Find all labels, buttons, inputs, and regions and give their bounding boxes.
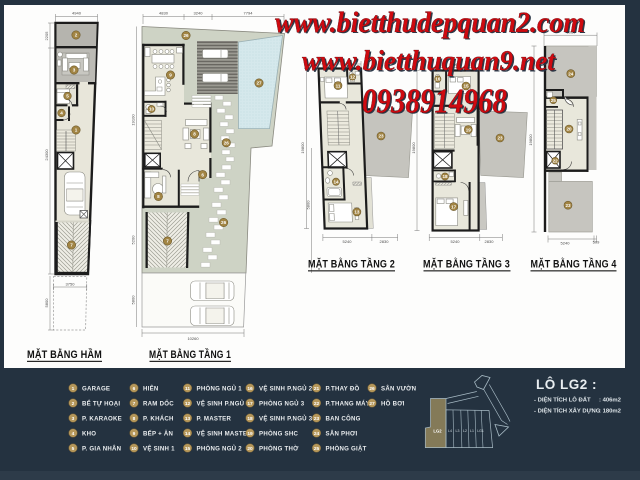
svg-text:HIÊN: HIÊN: [143, 384, 159, 392]
svg-text:10: 10: [149, 107, 155, 112]
svg-text:23: 23: [565, 203, 571, 208]
svg-text:P. KARAOKE: P. KARAOKE: [82, 415, 122, 422]
svg-text:BỂ TỰ HOẠI: BỂ TỰ HOẠI: [82, 400, 120, 407]
svg-text:LG1: LG1: [477, 429, 484, 433]
svg-text:SÂN VƯỜN: SÂN VƯỜN: [381, 384, 416, 392]
svg-text:19800: 19800: [528, 134, 533, 146]
svg-text:MẶT BẰNG TẦNG 4: MẶT BẰNG TẦNG 4: [531, 258, 618, 271]
svg-text:SÂN PHƠI: SÂN PHƠI: [326, 430, 358, 437]
svg-text:5240: 5240: [343, 239, 353, 244]
svg-text:19100: 19100: [131, 114, 136, 126]
svg-text:5: 5: [72, 446, 75, 452]
svg-text:MẶT BẰNG TẦNG 3: MẶT BẰNG TẦNG 3: [423, 258, 510, 271]
svg-text:RAM DỐC: RAM DỐC: [143, 400, 174, 407]
svg-text:VỆ SINH P.NGỦ 1: VỆ SINH P.NGỦ 1: [197, 399, 251, 407]
svg-text:7: 7: [70, 243, 73, 248]
svg-text:22: 22: [314, 401, 320, 407]
svg-text:1: 1: [75, 128, 78, 133]
svg-text:- DIỆN TÍCH LÔ ĐẤT: - DIỆN TÍCH LÔ ĐẤT: [534, 396, 591, 404]
svg-text:BẾP + ĂN: BẾP + ĂN: [143, 430, 173, 437]
svg-text:23: 23: [314, 416, 320, 422]
svg-text:PHÒNG NGỦ 2: PHÒNG NGỦ 2: [197, 444, 243, 452]
svg-text:LÔ LG2 :: LÔ LG2 :: [536, 377, 597, 392]
svg-text:5240: 5240: [451, 239, 461, 244]
svg-text:L3: L3: [456, 429, 460, 433]
svg-text:2830: 2830: [485, 239, 495, 244]
svg-text:8: 8: [193, 132, 196, 137]
svg-text:PHÒNG GIẶT: PHÒNG GIẶT: [326, 444, 367, 452]
svg-text:19800: 19800: [300, 142, 305, 154]
svg-text:10: 10: [131, 446, 137, 452]
svg-text:15: 15: [185, 446, 191, 452]
svg-text:11: 11: [185, 386, 190, 392]
svg-text:24: 24: [314, 431, 320, 437]
svg-text:509: 509: [593, 240, 600, 245]
svg-text:3: 3: [72, 416, 75, 422]
svg-text:24: 24: [568, 71, 574, 76]
svg-text:3750: 3750: [66, 282, 76, 287]
svg-text:P. MASTER: P. MASTER: [197, 415, 232, 422]
svg-text:23: 23: [378, 134, 384, 139]
svg-text:18: 18: [442, 174, 448, 179]
svg-text:13: 13: [354, 210, 360, 215]
svg-text:HỒ BƠI: HỒ BƠI: [381, 400, 405, 407]
svg-text:10260: 10260: [187, 336, 199, 341]
svg-text:PHÒNG NGỦ 1: PHÒNG NGỦ 1: [197, 384, 243, 392]
svg-text:26: 26: [221, 220, 227, 225]
svg-text:20: 20: [247, 446, 253, 452]
svg-text:: 180m2: : 180m2: [599, 409, 622, 415]
svg-text:6: 6: [133, 386, 136, 392]
svg-text:22: 22: [553, 158, 559, 163]
svg-text:MẶT BẰNG HẦM: MẶT BẰNG HẦM: [27, 348, 102, 361]
svg-text:- DIỆN TÍCH XÂY DỰNG: - DIỆN TÍCH XÂY DỰNG: [534, 407, 601, 415]
svg-text:21: 21: [314, 386, 320, 392]
svg-text:9: 9: [169, 73, 172, 78]
svg-text:26: 26: [183, 33, 189, 38]
svg-text:27: 27: [369, 401, 375, 407]
svg-text:VỆ SINH 1: VỆ SINH 1: [143, 444, 175, 452]
svg-text:0938914968: 0938914968: [362, 81, 507, 120]
svg-text:VỆ SINH P.NGỦ 2: VỆ SINH P.NGỦ 2: [259, 384, 313, 392]
svg-text:7794: 7794: [244, 11, 254, 16]
svg-text:www.bietthuquan9.net: www.bietthuquan9.net: [302, 45, 556, 77]
svg-text:19800: 19800: [411, 142, 416, 154]
svg-text:2830: 2830: [380, 239, 390, 244]
svg-text:3: 3: [73, 68, 76, 73]
svg-text:24300: 24300: [44, 149, 49, 161]
svg-text:L4: L4: [448, 429, 452, 433]
svg-text:LG2: LG2: [433, 429, 442, 434]
svg-text:L2: L2: [463, 429, 467, 433]
svg-text:14: 14: [333, 179, 339, 184]
svg-text:GARAGE: GARAGE: [82, 385, 110, 392]
svg-text:9: 9: [133, 431, 136, 437]
svg-text:MẶT BẰNG TẦNG 2: MẶT BẰNG TẦNG 2: [308, 258, 395, 271]
svg-text:P. KHÁCH: P. KHÁCH: [143, 415, 174, 422]
svg-text:25: 25: [314, 446, 320, 452]
svg-text:11: 11: [336, 83, 341, 88]
svg-text:5240: 5240: [561, 240, 571, 245]
svg-text:25: 25: [551, 98, 557, 103]
svg-text:5800: 5800: [44, 298, 49, 308]
svg-text:P.THAY ĐỒ: P.THAY ĐỒ: [326, 385, 360, 392]
svg-text:4830: 4830: [159, 11, 169, 16]
svg-text:8: 8: [133, 416, 136, 422]
svg-text:13: 13: [185, 416, 191, 422]
svg-text:16: 16: [247, 386, 253, 392]
svg-text:20: 20: [566, 127, 572, 132]
svg-text:14: 14: [185, 431, 191, 437]
svg-text:8: 8: [157, 194, 160, 199]
svg-text:2: 2: [72, 401, 75, 407]
svg-text:4: 4: [60, 111, 63, 116]
svg-text:PHÒNG THỜ: PHÒNG THỜ: [259, 444, 299, 452]
svg-text:2205: 2205: [44, 31, 49, 41]
svg-text:23: 23: [497, 136, 503, 141]
svg-text:P. GIA NHÂN: P. GIA NHÂN: [82, 445, 121, 452]
svg-text:5: 5: [66, 94, 69, 99]
svg-text:17: 17: [247, 401, 253, 407]
svg-text:17: 17: [451, 204, 457, 209]
svg-text:7: 7: [133, 401, 136, 407]
svg-text:5200: 5200: [131, 235, 136, 245]
svg-text:3240: 3240: [194, 11, 204, 16]
svg-text:4: 4: [72, 431, 75, 437]
svg-text:www.bietthudepquan2.com: www.bietthudepquan2.com: [275, 6, 585, 39]
svg-text:26: 26: [369, 386, 375, 392]
svg-text:19: 19: [466, 127, 472, 132]
svg-text:1: 1: [72, 386, 75, 392]
svg-text:6: 6: [201, 172, 204, 177]
svg-text:P.THANG MÁY: P.THANG MÁY: [326, 400, 371, 407]
svg-text:VỆ SINH P.NGỦ 3: VỆ SINH P.NGỦ 3: [259, 414, 313, 422]
svg-text:4940: 4940: [72, 11, 82, 16]
svg-text:PHÒNG SHC: PHÒNG SHC: [259, 429, 299, 437]
svg-text:L1: L1: [470, 429, 474, 433]
svg-text:12: 12: [185, 401, 191, 407]
svg-text:KHO: KHO: [82, 430, 96, 437]
svg-text:PHÒNG NGỦ 3: PHÒNG NGỦ 3: [259, 399, 305, 407]
svg-text:2: 2: [75, 33, 78, 38]
svg-text:MẶT BẰNG TẦNG 1: MẶT BẰNG TẦNG 1: [149, 348, 231, 361]
svg-text:VỆ SINH MASTER: VỆ SINH MASTER: [197, 429, 253, 437]
svg-text:18: 18: [247, 416, 253, 422]
svg-text:5800: 5800: [131, 295, 136, 305]
svg-text:19: 19: [247, 431, 253, 437]
svg-text:27: 27: [256, 81, 262, 86]
svg-text:7: 7: [166, 239, 169, 244]
svg-text:26: 26: [224, 140, 230, 145]
svg-text:BAN CÔNG: BAN CÔNG: [326, 414, 361, 422]
svg-text:: 406m2: : 406m2: [599, 398, 622, 404]
